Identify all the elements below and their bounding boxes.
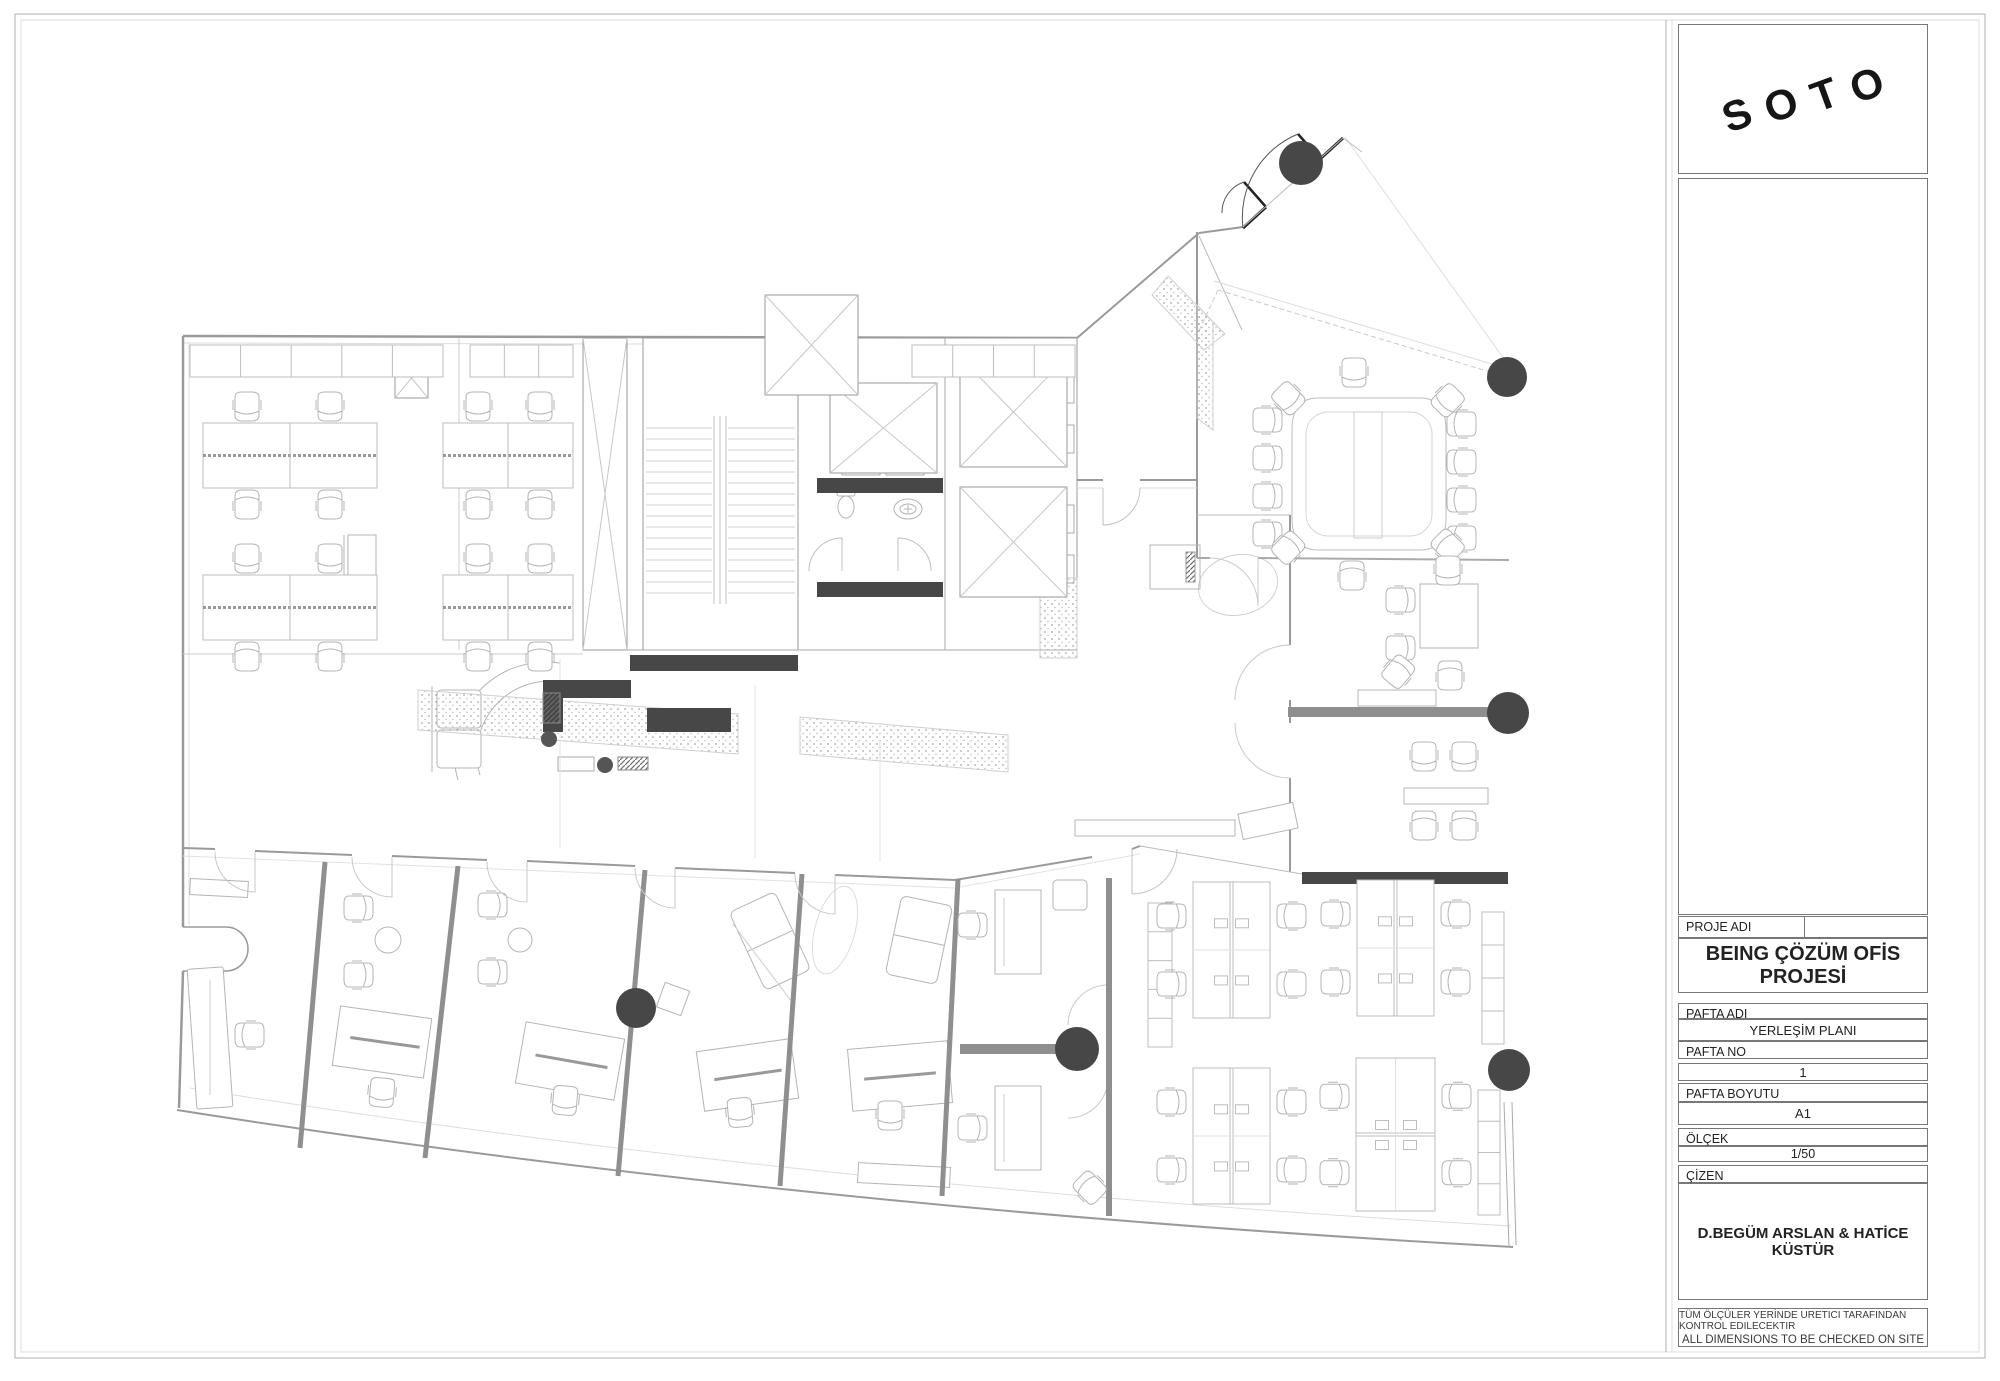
pafta-no-value: 1 [1678, 1063, 1928, 1081]
chair [464, 544, 492, 573]
chair [1441, 900, 1470, 928]
chair [478, 891, 507, 919]
chair [1434, 556, 1462, 585]
hatched-element [618, 757, 648, 770]
shaft-x-box [765, 295, 858, 395]
cell-divider [1804, 917, 1805, 937]
desk-bench [443, 392, 573, 519]
shaft-x-box [583, 338, 627, 650]
chair [1338, 561, 1366, 590]
chair [958, 1114, 987, 1142]
chair [526, 544, 554, 573]
hatched-wall [1152, 276, 1225, 350]
chair [1447, 486, 1476, 514]
chair [1320, 1082, 1349, 1110]
chair [1157, 1156, 1186, 1184]
cabinet-row [190, 345, 443, 377]
structural-column [616, 988, 656, 1028]
soto-logo: SOTO [1703, 54, 1903, 144]
chair [1157, 902, 1186, 930]
olcek-label: ÖLÇEK [1678, 1128, 1928, 1146]
workstation-cluster [1157, 1068, 1306, 1204]
hatched-element [543, 693, 560, 723]
drawing-sheet: SOTO PROJE ADI BEING ÇÖZÜM OFİS PROJESİ … [0, 0, 2000, 1381]
chair [367, 1077, 397, 1108]
chair [316, 392, 344, 421]
meeting-room [1197, 281, 1512, 606]
chair [233, 490, 261, 519]
chair [478, 958, 507, 986]
cizen-value: D.BEGÜM ARSLAN & HATİCE KÜSTÜR [1678, 1183, 1928, 1300]
cabinet-row [912, 345, 1075, 377]
workstation-cluster [1321, 880, 1470, 1016]
shaft-x-box [830, 383, 937, 473]
chair [1450, 811, 1478, 840]
chair [464, 392, 492, 421]
structural-wall [817, 478, 943, 493]
structural-wall [647, 708, 731, 732]
reception-dot [597, 757, 613, 773]
chair [1442, 1082, 1471, 1110]
chair [344, 894, 373, 922]
shaft-x-box [960, 487, 1067, 597]
cabinet-row [470, 345, 573, 377]
structural-wall [817, 582, 943, 597]
chair [526, 490, 554, 519]
chair [1320, 1159, 1349, 1187]
partition-wall-thick [1288, 707, 1509, 717]
chair [958, 911, 987, 939]
chair [1410, 811, 1438, 840]
pafta-boyutu-value: A1 [1678, 1102, 1928, 1125]
pafta-boyutu-label: PAFTA BOYUTU [1678, 1083, 1928, 1102]
pafta-no-label: PAFTA NO [1678, 1041, 1928, 1059]
chair [1277, 1088, 1306, 1116]
chair [1277, 1156, 1306, 1184]
chair [550, 1085, 580, 1116]
chair [233, 642, 261, 671]
chair [1386, 586, 1415, 614]
chair [316, 544, 344, 573]
structural-column [1487, 357, 1527, 397]
pafta-adi-label: PAFTA ADI [1678, 1003, 1928, 1019]
structural-column [1055, 1027, 1099, 1071]
chair [725, 1097, 755, 1128]
chair [1157, 1088, 1186, 1116]
chair [316, 642, 344, 671]
logo-box: SOTO [1678, 24, 1928, 174]
chair [233, 392, 261, 421]
chair [316, 490, 344, 519]
chair [526, 392, 554, 421]
chair [464, 642, 492, 671]
workstation-cluster [1320, 1058, 1471, 1211]
hatched-wall [800, 717, 1008, 772]
chair [1450, 742, 1478, 771]
chair [876, 1101, 904, 1130]
desk-bench [443, 544, 573, 671]
titleblock-blank-panel [1678, 178, 1928, 915]
structural-wall [630, 655, 798, 671]
proje-adi-label: PROJE ADI [1678, 916, 1928, 938]
chair [1447, 448, 1476, 476]
chair [1253, 444, 1282, 472]
partition-wall-thick [1106, 878, 1112, 1216]
chair [233, 544, 261, 573]
cabinet-row [1478, 1090, 1500, 1215]
chair [1436, 661, 1464, 690]
structural-column [1488, 1049, 1530, 1091]
chair [1410, 742, 1438, 771]
chair [1442, 1159, 1471, 1187]
dimensions-note: TÜM ÖLÇÜLER YERİNDE URETICI TARAFINDAN K… [1678, 1308, 1928, 1347]
structural-column [1487, 692, 1529, 734]
note-line-en: ALL DIMENSIONS TO BE CHECKED ON SITE [1682, 1334, 1924, 1346]
chair [1277, 902, 1306, 930]
office-partition [425, 866, 458, 1158]
note-line-tr: TÜM ÖLÇÜLER YERİNDE URETICI TARAFINDAN K… [1679, 1310, 1927, 1332]
chair [526, 642, 554, 671]
project-name: BEING ÇÖZÜM OFİS PROJESİ [1678, 938, 1928, 993]
chair [235, 1021, 264, 1049]
chair [1253, 406, 1282, 434]
chair [464, 490, 492, 519]
olcek-value: 1/50 [1678, 1146, 1928, 1162]
desk-bench [203, 392, 377, 519]
office-partition [300, 862, 325, 1148]
hatched-wall [1197, 305, 1213, 430]
chair [1069, 1167, 1109, 1207]
cabinet-row [1482, 912, 1504, 1044]
cizen-label: ÇİZEN [1678, 1165, 1928, 1183]
chair [1253, 482, 1282, 510]
chair [1340, 358, 1368, 387]
office-furniture [187, 802, 1298, 1187]
structural-column [1279, 141, 1323, 185]
chair [1321, 968, 1350, 996]
chair [344, 961, 373, 989]
reception-dot [541, 731, 557, 747]
workstation-cluster [1157, 882, 1306, 1018]
chair [1321, 900, 1350, 928]
chair [1441, 968, 1470, 996]
chair [1277, 970, 1306, 998]
chair [1157, 970, 1186, 998]
pafta-adi-value: YERLEŞİM PLANI [1678, 1019, 1928, 1041]
